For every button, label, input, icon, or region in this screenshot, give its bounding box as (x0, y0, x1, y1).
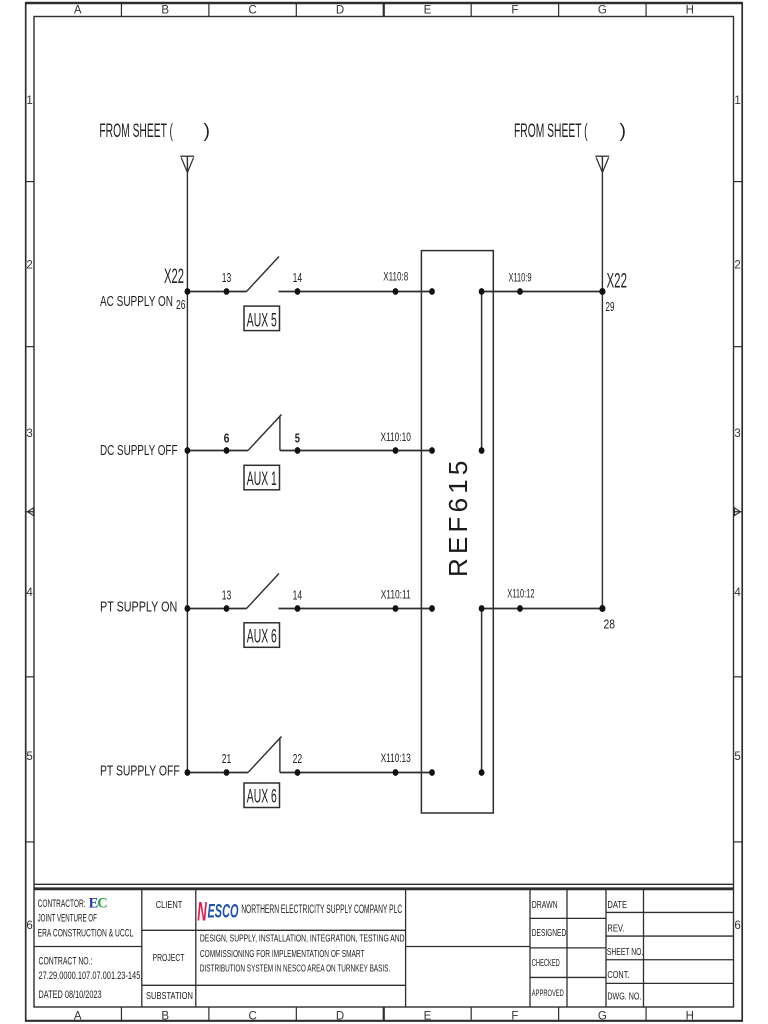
svg-text:REV.: REV. (607, 922, 624, 934)
svg-text:1: 1 (734, 95, 740, 107)
svg-text:29: 29 (606, 300, 615, 314)
svg-text:4: 4 (734, 587, 741, 599)
svg-text:APPROVED: APPROVED (532, 988, 564, 999)
svg-text:6: 6 (734, 920, 740, 932)
svg-text:28: 28 (604, 617, 616, 632)
svg-text:13: 13 (222, 270, 232, 285)
svg-text:X22: X22 (164, 265, 184, 288)
svg-text:JOINT VENTURE OF: JOINT VENTURE OF (38, 913, 97, 925)
svg-text:CHECKED: CHECKED (532, 958, 560, 969)
svg-text:X110:10: X110:10 (380, 430, 411, 444)
svg-text:G: G (598, 4, 607, 16)
svg-text:X110:11: X110:11 (381, 588, 411, 602)
svg-text:6: 6 (224, 431, 230, 446)
svg-text:3: 3 (734, 428, 740, 440)
svg-text:26: 26 (176, 298, 186, 312)
svg-text:21: 21 (222, 751, 232, 766)
svg-text:3: 3 (26, 428, 32, 440)
svg-text:X22: X22 (607, 270, 628, 293)
svg-text:E: E (424, 1010, 432, 1022)
svg-text:DATE: DATE (607, 899, 627, 911)
svg-text:H: H (686, 1010, 694, 1022)
svg-text:AUX 6: AUX 6 (247, 626, 277, 648)
svg-text:AUX 1: AUX 1 (247, 468, 277, 490)
svg-text:CONTRACTOR:: CONTRACTOR: (38, 898, 86, 910)
svg-text:DISTRIBUTION SYSTEM IN NESCO A: DISTRIBUTION SYSTEM IN NESCO AREA ON TUR… (200, 963, 390, 975)
svg-text:13: 13 (222, 588, 232, 603)
svg-text:AUX 5: AUX 5 (247, 310, 277, 332)
svg-text:FROM SHEET (: FROM SHEET ( (514, 120, 588, 142)
svg-text:): ) (620, 120, 627, 142)
svg-text:CONTRACT NO.:: CONTRACT NO.: (39, 956, 93, 968)
svg-text:14: 14 (293, 270, 303, 285)
svg-text:F: F (511, 1010, 518, 1022)
svg-text:NORTHERN ELECTRICITY SUPPLY CO: NORTHERN ELECTRICITY SUPPLY COMPANY PLC (241, 904, 402, 916)
svg-text:SUBSTATION: SUBSTATION (146, 990, 193, 1002)
svg-text:H: H (686, 4, 694, 16)
svg-text:X110:13: X110:13 (381, 751, 411, 765)
svg-text:DESIGNED: DESIGNED (532, 928, 566, 939)
svg-text:22: 22 (293, 751, 303, 766)
svg-text:AUX 6: AUX 6 (247, 786, 277, 808)
svg-text:1: 1 (26, 95, 32, 107)
svg-text:D: D (336, 4, 344, 16)
svg-text:C: C (97, 896, 107, 912)
svg-text:5: 5 (734, 751, 740, 763)
svg-text:5: 5 (295, 431, 300, 446)
svg-text:FROM SHEET (: FROM SHEET ( (99, 120, 173, 142)
svg-text:X110:8: X110:8 (383, 270, 408, 284)
svg-text:CLIENT: CLIENT (156, 899, 183, 911)
svg-text:DC SUPPLY OFF: DC SUPPLY OFF (100, 443, 178, 459)
svg-text:REF615: REF615 (443, 456, 473, 577)
svg-text:D: D (336, 1010, 344, 1022)
svg-text:CONT.: CONT. (607, 969, 629, 981)
svg-text:DRAWN: DRAWN (532, 900, 558, 911)
svg-text:PT SUPPLY OFF: PT SUPPLY OFF (100, 764, 180, 780)
svg-text:SHEET NO.: SHEET NO. (607, 946, 643, 958)
svg-text:B: B (161, 1010, 169, 1022)
svg-text:X110:12: X110:12 (507, 587, 534, 601)
svg-text:): ) (204, 120, 211, 142)
svg-text:2: 2 (26, 260, 32, 272)
svg-text:C: C (248, 1010, 256, 1022)
svg-text:E: E (424, 4, 432, 16)
svg-text:AC SUPPLY ON: AC SUPPLY ON (100, 294, 173, 310)
svg-text:C: C (248, 4, 256, 16)
svg-text:2: 2 (734, 260, 740, 272)
svg-text:G: G (598, 1010, 607, 1022)
svg-text:6: 6 (26, 920, 32, 932)
svg-text:N: N (197, 897, 207, 927)
svg-text:A: A (74, 4, 82, 16)
svg-text:F: F (511, 4, 518, 16)
svg-text:A: A (74, 1010, 82, 1022)
svg-text:ERA CONSTRUCTION & UCCL: ERA CONSTRUCTION & UCCL (38, 928, 134, 940)
svg-text:PROJECT: PROJECT (153, 952, 185, 964)
svg-text:DWG. NO.: DWG. NO. (607, 991, 641, 1003)
svg-text:14: 14 (293, 588, 303, 603)
svg-text:4: 4 (26, 587, 33, 599)
svg-text:ESCO: ESCO (208, 902, 239, 923)
svg-text:X110:9: X110:9 (509, 271, 532, 285)
svg-text:5: 5 (26, 751, 32, 763)
svg-text:PT SUPPLY ON: PT SUPPLY ON (100, 599, 177, 615)
svg-text:B: B (161, 4, 169, 16)
svg-text:COMMISSIONING FOR IMPLEMENTATI: COMMISSIONING FOR IMPLEMENTATION OF SMAR… (200, 948, 365, 960)
svg-text:DESIGN, SUPPLY, INSTALLATION,: DESIGN, SUPPLY, INSTALLATION, INTEGRATIO… (200, 933, 405, 945)
svg-text:DATED 08/10/2023: DATED 08/10/2023 (39, 989, 102, 1001)
svg-text:27.29.0000.107.07.001.23-145;: 27.29.0000.107.07.001.23-145; (39, 970, 143, 982)
